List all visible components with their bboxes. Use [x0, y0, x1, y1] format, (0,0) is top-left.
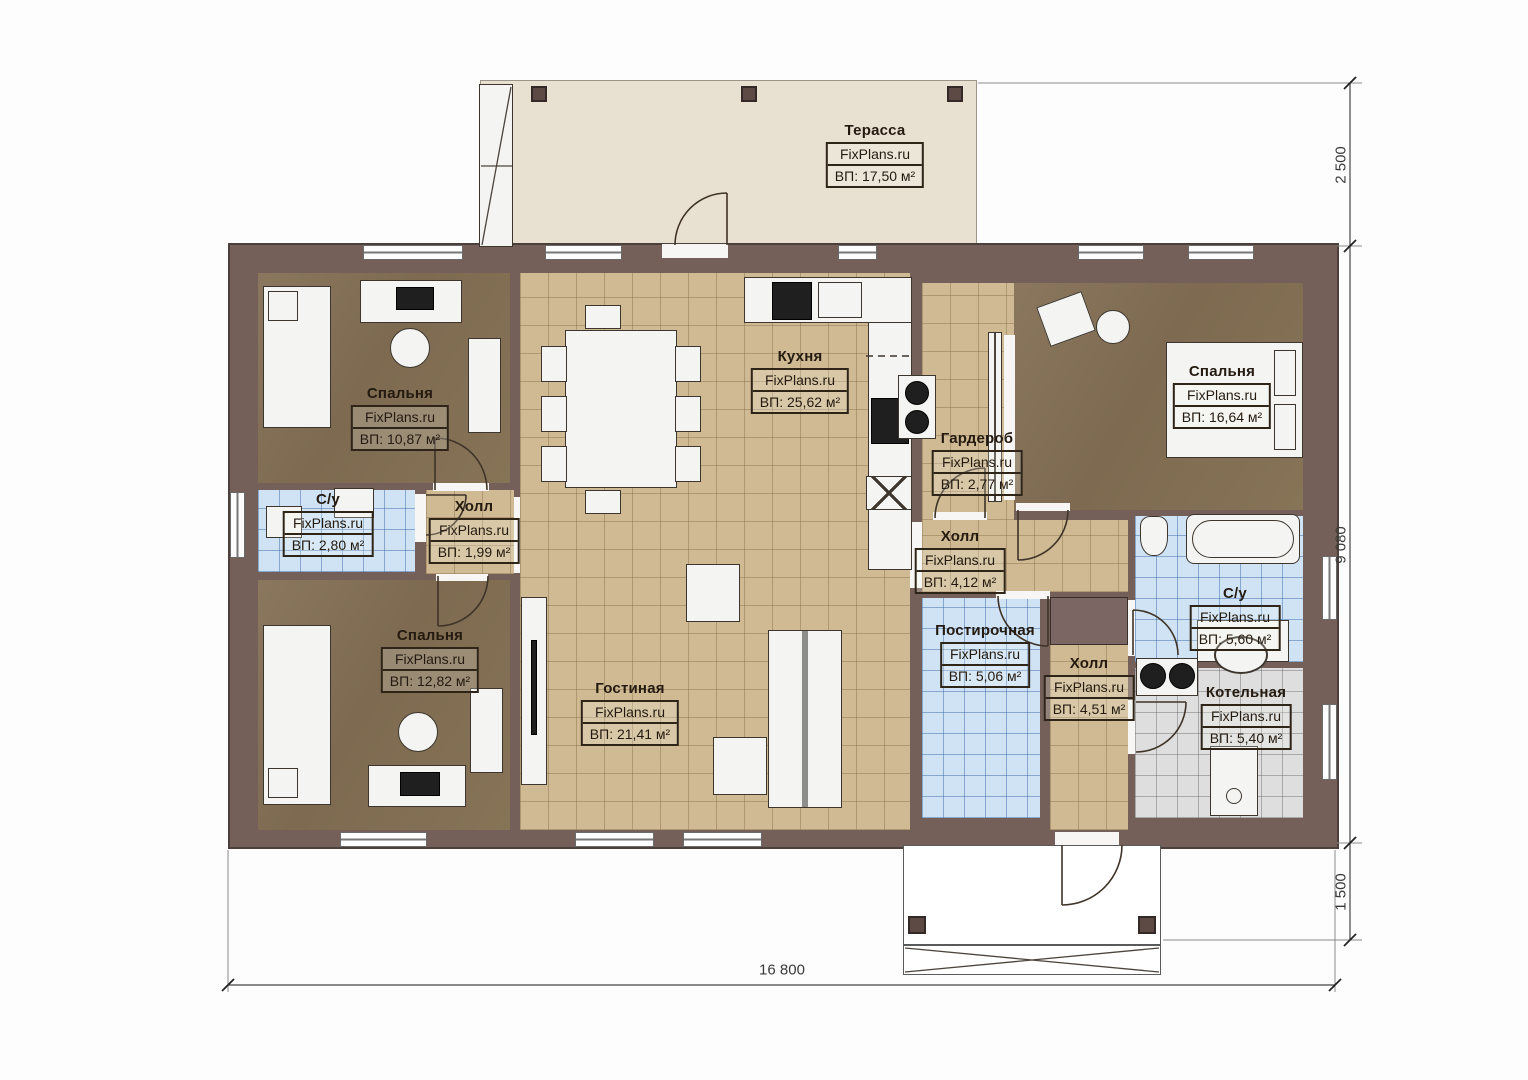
boiler-icon — [1210, 746, 1258, 816]
brand-watermark: FixPlans.ru — [583, 702, 677, 724]
dimension-terrace-depth: 2 500 — [1333, 146, 1350, 184]
window — [545, 245, 622, 260]
room-label-boiler: Котельная FixPlans.ru ВП: 5,40 м² — [1201, 684, 1292, 750]
room-area: ВП: 2,80 м² — [285, 535, 372, 555]
room-name: С/у — [1190, 585, 1281, 602]
room-area: ВП: 5,60 м² — [1192, 629, 1279, 649]
room-area: ВП: 5,06 м² — [942, 666, 1029, 686]
dimension-house-depth: 9 080 — [1333, 526, 1350, 564]
chair-icon — [675, 446, 701, 482]
porch-column-icon — [908, 916, 926, 934]
brand-watermark: FixPlans.ru — [1203, 706, 1290, 728]
pillow-icon — [268, 768, 298, 798]
room-name: Спальня — [1173, 363, 1271, 380]
terrace-column-icon — [531, 86, 547, 102]
pillow-icon — [1274, 404, 1296, 450]
room-name: Котельная — [1201, 684, 1292, 701]
window — [363, 245, 463, 260]
room-label-wardrobe: Гардероб FixPlans.ru ВП: 2,77 м² — [932, 430, 1023, 496]
room-name: Холл — [1044, 655, 1135, 672]
door-opening — [433, 483, 489, 491]
stove-icon — [772, 282, 812, 320]
dimension-porch-depth: 1 500 — [1333, 873, 1350, 911]
room-name: Постирочная — [935, 622, 1035, 639]
sofa-icon — [768, 630, 842, 808]
room-info-box: FixPlans.ru ВП: 25,62 м² — [751, 368, 849, 414]
terrace-door-opening — [662, 244, 728, 258]
window — [340, 832, 427, 847]
porch-platform — [903, 845, 1161, 945]
burner-icon — [905, 381, 929, 405]
dryer-drum-icon — [1169, 663, 1195, 689]
terrace-stairs-icon — [479, 84, 513, 247]
room-info-box: FixPlans.ru ВП: 16,64 м² — [1173, 383, 1271, 429]
brand-watermark: FixPlans.ru — [1046, 677, 1133, 699]
terrace-column-icon — [947, 86, 963, 102]
room-label-hall2: Холл FixPlans.ru ВП: 4,12 м² — [915, 528, 1006, 594]
burner-icon — [905, 410, 929, 434]
chair-icon — [541, 346, 567, 382]
terrace-column-icon — [741, 86, 757, 102]
room-area: ВП: 4,12 м² — [917, 572, 1004, 592]
room-label-terrace: Терасса FixPlans.ru ВП: 17,50 м² — [826, 122, 924, 188]
room-label-bedroom3: Спальня FixPlans.ru ВП: 12,82 м² — [381, 627, 479, 693]
window — [838, 245, 877, 260]
brand-watermark: FixPlans.ru — [828, 144, 922, 166]
window — [1078, 245, 1144, 260]
kitchen-sink-icon — [818, 282, 862, 318]
boiler-valve-icon — [1226, 788, 1242, 804]
room-area: ВП: 17,50 м² — [828, 166, 922, 186]
room-area: ВП: 12,82 м² — [383, 671, 477, 691]
brand-watermark: FixPlans.ru — [1192, 607, 1279, 629]
porch-steps-icon — [903, 945, 1161, 975]
window — [1188, 245, 1254, 260]
window — [575, 832, 654, 847]
chair-icon — [675, 396, 701, 432]
brand-watermark: FixPlans.ru — [917, 550, 1004, 572]
brand-watermark: FixPlans.ru — [353, 407, 447, 429]
side-table-icon — [1096, 310, 1130, 344]
room-area: ВП: 16,64 м² — [1175, 407, 1269, 427]
room-area: ВП: 10,87 м² — [353, 429, 447, 449]
room-name: Спальня — [381, 627, 479, 644]
chair-icon — [541, 446, 567, 482]
chair-icon — [390, 328, 430, 368]
room-label-bath1: С/у FixPlans.ru ВП: 2,80 м² — [283, 491, 374, 557]
room-area: ВП: 4,51 м² — [1046, 699, 1133, 719]
room-area: ВП: 5,40 м² — [1203, 728, 1290, 748]
room-name: Холл — [915, 528, 1006, 545]
floor-plan: Терасса FixPlans.ru ВП: 17,50 м² Спальня… — [0, 0, 1528, 1080]
bathtub-inner-icon — [1192, 520, 1294, 558]
room-area: ВП: 1,99 м² — [431, 542, 518, 562]
room-info-box: FixPlans.ru ВП: 4,12 м² — [915, 548, 1006, 594]
window — [230, 492, 245, 558]
window — [1322, 556, 1337, 620]
brand-watermark: FixPlans.ru — [942, 644, 1029, 666]
room-info-box: FixPlans.ru ВП: 1,99 м² — [429, 518, 520, 564]
room-area: ВП: 2,77 м² — [934, 474, 1021, 494]
toilet-icon — [1140, 516, 1168, 556]
wardrobe-cabinet-icon — [468, 338, 501, 433]
porch-column-icon — [1138, 916, 1156, 934]
tv-icon — [531, 640, 537, 735]
brand-watermark: FixPlans.ru — [285, 513, 372, 535]
room-name: Терасса — [826, 122, 924, 139]
room-info-box: FixPlans.ru ВП: 5,40 м² — [1201, 704, 1292, 750]
brand-watermark: FixPlans.ru — [934, 452, 1021, 474]
room-name: Гардероб — [932, 430, 1023, 447]
room-area: ВП: 21,41 м² — [583, 724, 677, 744]
room-label-hall3: Холл FixPlans.ru ВП: 4,51 м² — [1044, 655, 1135, 721]
chair-icon — [398, 712, 438, 752]
room-info-box: FixPlans.ru ВП: 10,87 м² — [351, 405, 449, 451]
kitchen-counter-icon — [868, 322, 912, 570]
chair-icon — [675, 346, 701, 382]
room-info-box: FixPlans.ru ВП: 12,82 м² — [381, 647, 479, 693]
pillow-icon — [1274, 350, 1296, 396]
room-info-box: FixPlans.ru ВП: 5,60 м² — [1190, 605, 1281, 651]
door-opening — [1128, 600, 1135, 656]
window — [683, 832, 762, 847]
room-name: Гостиная — [581, 680, 679, 697]
printer-icon — [400, 772, 440, 796]
pillow-icon — [268, 291, 298, 321]
brand-watermark: FixPlans.ru — [431, 520, 518, 542]
window — [1322, 704, 1337, 780]
room-info-box: FixPlans.ru ВП: 17,50 м² — [826, 142, 924, 188]
room-label-bedroom1: Спальня FixPlans.ru ВП: 10,87 м² — [351, 385, 449, 451]
room-label-laundry: Постирочная FixPlans.ru ВП: 5,06 м² — [935, 622, 1035, 688]
room-info-box: FixPlans.ru ВП: 5,06 м² — [940, 642, 1031, 688]
hall-closet-icon — [1050, 597, 1128, 645]
room-area: ВП: 25,62 м² — [753, 392, 847, 412]
chair-icon — [585, 305, 621, 329]
wardrobe-cabinet-icon — [470, 688, 503, 773]
room-label-living: Гостиная FixPlans.ru ВП: 21,41 м² — [581, 680, 679, 746]
room-name: Холл — [429, 498, 520, 515]
room-label-bath2: С/у FixPlans.ru ВП: 5,60 м² — [1190, 585, 1281, 651]
door-opening — [436, 574, 488, 581]
chair-icon — [541, 396, 567, 432]
brand-watermark: FixPlans.ru — [753, 370, 847, 392]
dimension-total-width: 16 800 — [759, 962, 805, 979]
room-info-box: FixPlans.ru ВП: 4,51 м² — [1044, 675, 1135, 721]
room-info-box: FixPlans.ru ВП: 21,41 м² — [581, 700, 679, 746]
cabinet-cross-icon — [866, 476, 912, 510]
brand-watermark: FixPlans.ru — [383, 649, 477, 671]
room-label-hall1: Холл FixPlans.ru ВП: 1,99 м² — [429, 498, 520, 564]
room-info-box: FixPlans.ru ВП: 2,77 м² — [932, 450, 1023, 496]
printer-icon — [396, 287, 434, 310]
washer-drum-icon — [1140, 663, 1166, 689]
room-name: С/у — [283, 491, 374, 508]
door-opening — [415, 494, 426, 542]
dining-table-icon — [565, 330, 677, 488]
entrance-door-opening — [1055, 832, 1119, 845]
chair-icon — [585, 490, 621, 514]
armchair-icon — [686, 564, 740, 622]
room-name: Спальня — [351, 385, 449, 402]
room-name: Кухня — [751, 348, 849, 365]
door-opening — [933, 512, 987, 520]
brand-watermark: FixPlans.ru — [1175, 385, 1269, 407]
room-label-kitchen: Кухня FixPlans.ru ВП: 25,62 м² — [751, 348, 849, 414]
room-info-box: FixPlans.ru ВП: 2,80 м² — [283, 511, 374, 557]
coffee-table-icon — [713, 737, 767, 795]
door-opening — [1016, 503, 1070, 511]
room-label-bedroom2: Спальня FixPlans.ru ВП: 16,64 м² — [1173, 363, 1271, 429]
